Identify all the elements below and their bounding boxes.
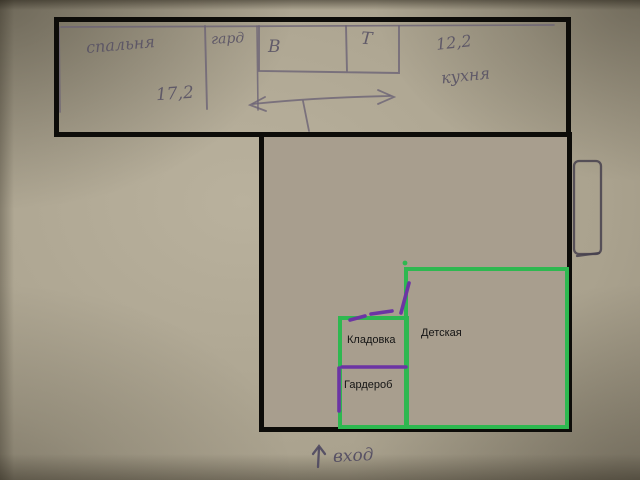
storage-wardrobe-room-box [338, 316, 409, 429]
storage-room-label: Кладовка [347, 334, 396, 346]
entrance-arrow-icon [313, 446, 325, 467]
balcony-foot-line [577, 253, 599, 256]
entrance-handwritten-label: вход [333, 445, 374, 467]
paper-photo-background: спальня гард В Т 17,2 12,2 кухня вход Кл… [0, 0, 640, 480]
kids-room-label: Детская [421, 327, 462, 339]
pen-balcony-rect [574, 161, 601, 256]
top-plan-black-outline [54, 17, 571, 137]
kids-room-box [404, 267, 569, 429]
wardrobe-room-label: Гардероб [344, 379, 392, 391]
balcony-outline [574, 161, 601, 254]
entrance-arrow-head [313, 446, 325, 454]
entrance-arrow-shaft [318, 448, 319, 467]
